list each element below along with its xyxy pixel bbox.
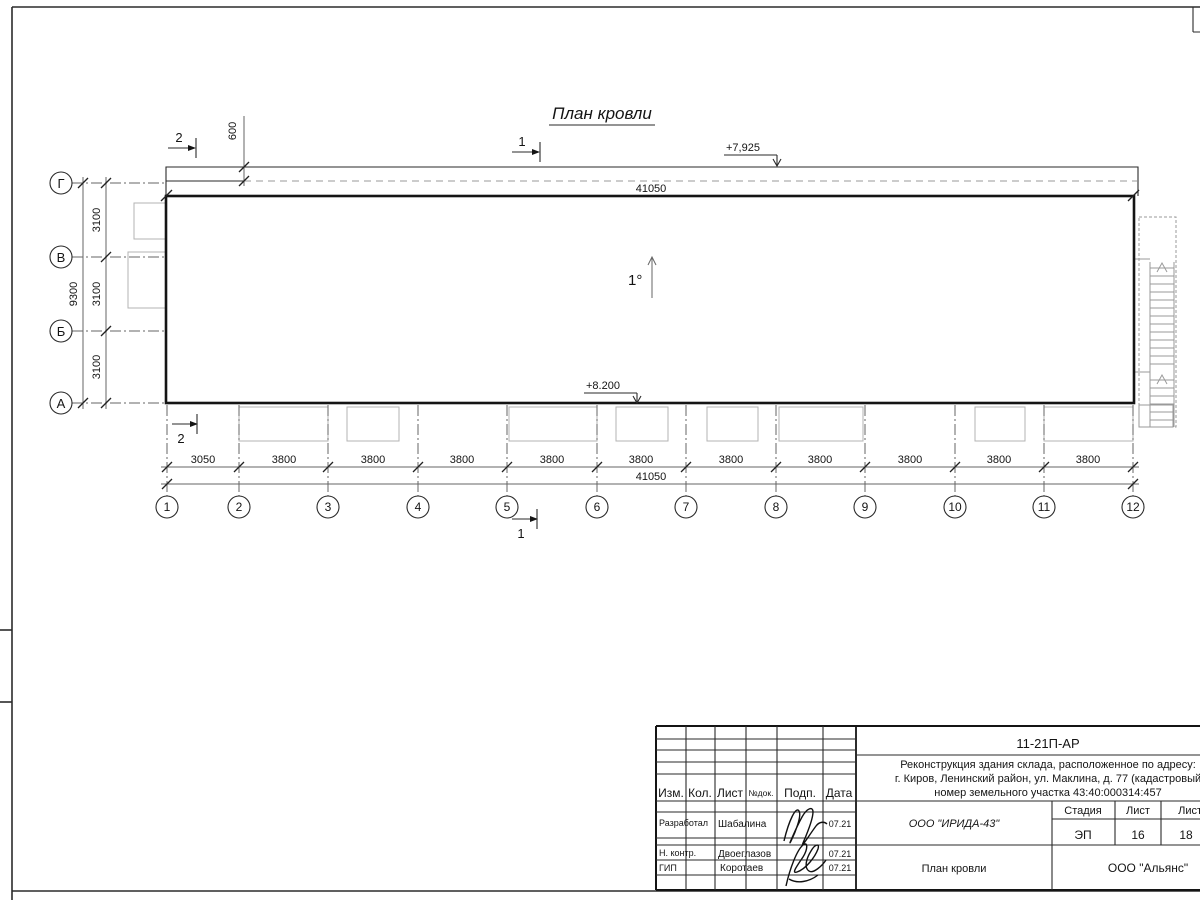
dim-col: 3800 <box>719 454 743 466</box>
top-total-dimension: 41050 <box>161 183 1139 201</box>
grid-row-label: Б <box>57 324 66 339</box>
grid-col-label: 12 <box>1126 500 1140 514</box>
section-label: 1 <box>518 134 525 149</box>
dim-row: 3100 <box>91 208 103 232</box>
grid-col-label: 9 <box>862 500 869 514</box>
col-circles: 1 2 3 4 5 6 7 8 9 10 11 12 <box>156 496 1144 518</box>
grid-col-label: 6 <box>594 500 601 514</box>
col-izm: Изм. <box>658 786 684 800</box>
title-block: Изм. Кол. Лист №док. Подп. Дата Разработ… <box>656 726 1200 890</box>
wall-projections <box>128 203 166 308</box>
page-title: План кровли <box>552 104 652 123</box>
project-line-2: г. Киров, Ленинский район, ул. Маклина, … <box>895 773 1200 785</box>
title-block-row: Н. контр. Двоеглазов 07.21 <box>659 848 851 860</box>
dim-col-total: 41050 <box>636 471 667 483</box>
section-mark-2-top: 2 <box>168 130 196 158</box>
role: ГИП <box>659 863 677 873</box>
blueprint-sheet: План кровли 60 <box>0 0 1200 900</box>
slope-value: 1° <box>628 272 642 289</box>
grid-col-label: 11 <box>1038 500 1051 514</box>
grid-col-label: 4 <box>415 500 422 514</box>
sheets-label: Листов <box>1178 805 1200 817</box>
grid-col-label: 8 <box>773 500 780 514</box>
dim-row: 3100 <box>91 355 103 379</box>
name: Шабалина <box>718 818 767 830</box>
grid-col-label: 10 <box>948 500 962 514</box>
name: Двоеглазов <box>718 849 771 860</box>
col-podp: Подп. <box>784 786 816 800</box>
project-line-3: номер земельного участка 43:40:000314:45… <box>934 787 1162 799</box>
elevation-roof-edge: +8.200 <box>584 380 641 403</box>
col-data: Дата <box>826 786 853 800</box>
elevation-parapet: +7,925 <box>724 142 781 166</box>
section-mark-2-bottom: 2 <box>172 414 198 446</box>
grid-row-label: А <box>57 396 66 411</box>
grid-col-label: 3 <box>325 500 332 514</box>
sheets-total: 18 <box>1179 828 1193 842</box>
signature-1 <box>784 809 827 845</box>
date: 07.21 <box>829 819 852 829</box>
col-kol: Кол. <box>688 786 712 800</box>
fire-escape-stair <box>1134 217 1176 427</box>
section-label: 2 <box>175 130 182 145</box>
date: 07.21 <box>829 849 852 859</box>
col-dimensions: 3050 3800 3800 3800 3800 3800 3800 3800 … <box>161 454 1139 489</box>
sheet-number: 16 <box>1131 828 1145 842</box>
name: Коротаев <box>720 863 763 874</box>
doc-code: 11-21П-АР <box>1016 736 1079 751</box>
drawing-title: План кровли <box>549 104 655 125</box>
section-mark-1-top: 1 <box>512 134 540 162</box>
dim-col: 3800 <box>1076 454 1100 466</box>
building-outline <box>166 196 1134 403</box>
contractor-name: ООО "Альянс" <box>1108 861 1188 875</box>
title-block-row: Разработал Шабалина 07.21 <box>659 818 851 830</box>
dim-top-total: 41050 <box>636 183 667 195</box>
col-ndoc: №док. <box>749 788 774 798</box>
grid-row-label: Г <box>57 176 64 191</box>
dim-col: 3800 <box>629 454 653 466</box>
dim-col: 3800 <box>272 454 296 466</box>
dim-600: 600 <box>227 122 239 140</box>
stage-label: Стадия <box>1064 805 1102 817</box>
grid-col-label: 5 <box>504 500 511 514</box>
col-list: Лист <box>717 786 744 800</box>
dim-row: 3100 <box>91 282 103 306</box>
stage-value: ЭП <box>1074 828 1091 842</box>
project-line-1: Реконструкция здания склада, расположенн… <box>900 759 1196 771</box>
elevation-value: +8.200 <box>586 380 620 392</box>
grid-col-label: 7 <box>683 500 690 514</box>
dim-row-total: 9300 <box>68 282 80 306</box>
dim-col: 3800 <box>540 454 564 466</box>
elevation-value: +7,925 <box>726 142 760 154</box>
dim-col: 3800 <box>361 454 385 466</box>
grid-row-label: В <box>57 250 66 265</box>
section-label: 1 <box>517 526 524 541</box>
section-label: 2 <box>177 431 184 446</box>
sheet-label: Лист <box>1126 805 1150 817</box>
slope-arrow: 1° <box>628 257 656 298</box>
overhang-dimension: 600 <box>227 116 249 186</box>
dim-col: 3800 <box>987 454 1011 466</box>
dim-col: 3050 <box>191 454 215 466</box>
grid-col-label: 2 <box>236 500 243 514</box>
row-dimensions: 3100 3100 3100 9300 <box>68 177 111 409</box>
role: Н. контр. <box>659 848 696 858</box>
org-name: ООО "ИРИДА-43" <box>909 818 1001 830</box>
grid-col-label: 1 <box>164 500 171 514</box>
signature-2 <box>786 844 826 886</box>
role: Разработал <box>659 818 708 828</box>
dim-col: 3800 <box>808 454 832 466</box>
dim-col: 3800 <box>450 454 474 466</box>
date: 07.21 <box>829 863 852 873</box>
corner-stamp-box <box>1193 7 1200 32</box>
sheet-title: План кровли <box>922 863 987 875</box>
dim-col: 3800 <box>898 454 922 466</box>
